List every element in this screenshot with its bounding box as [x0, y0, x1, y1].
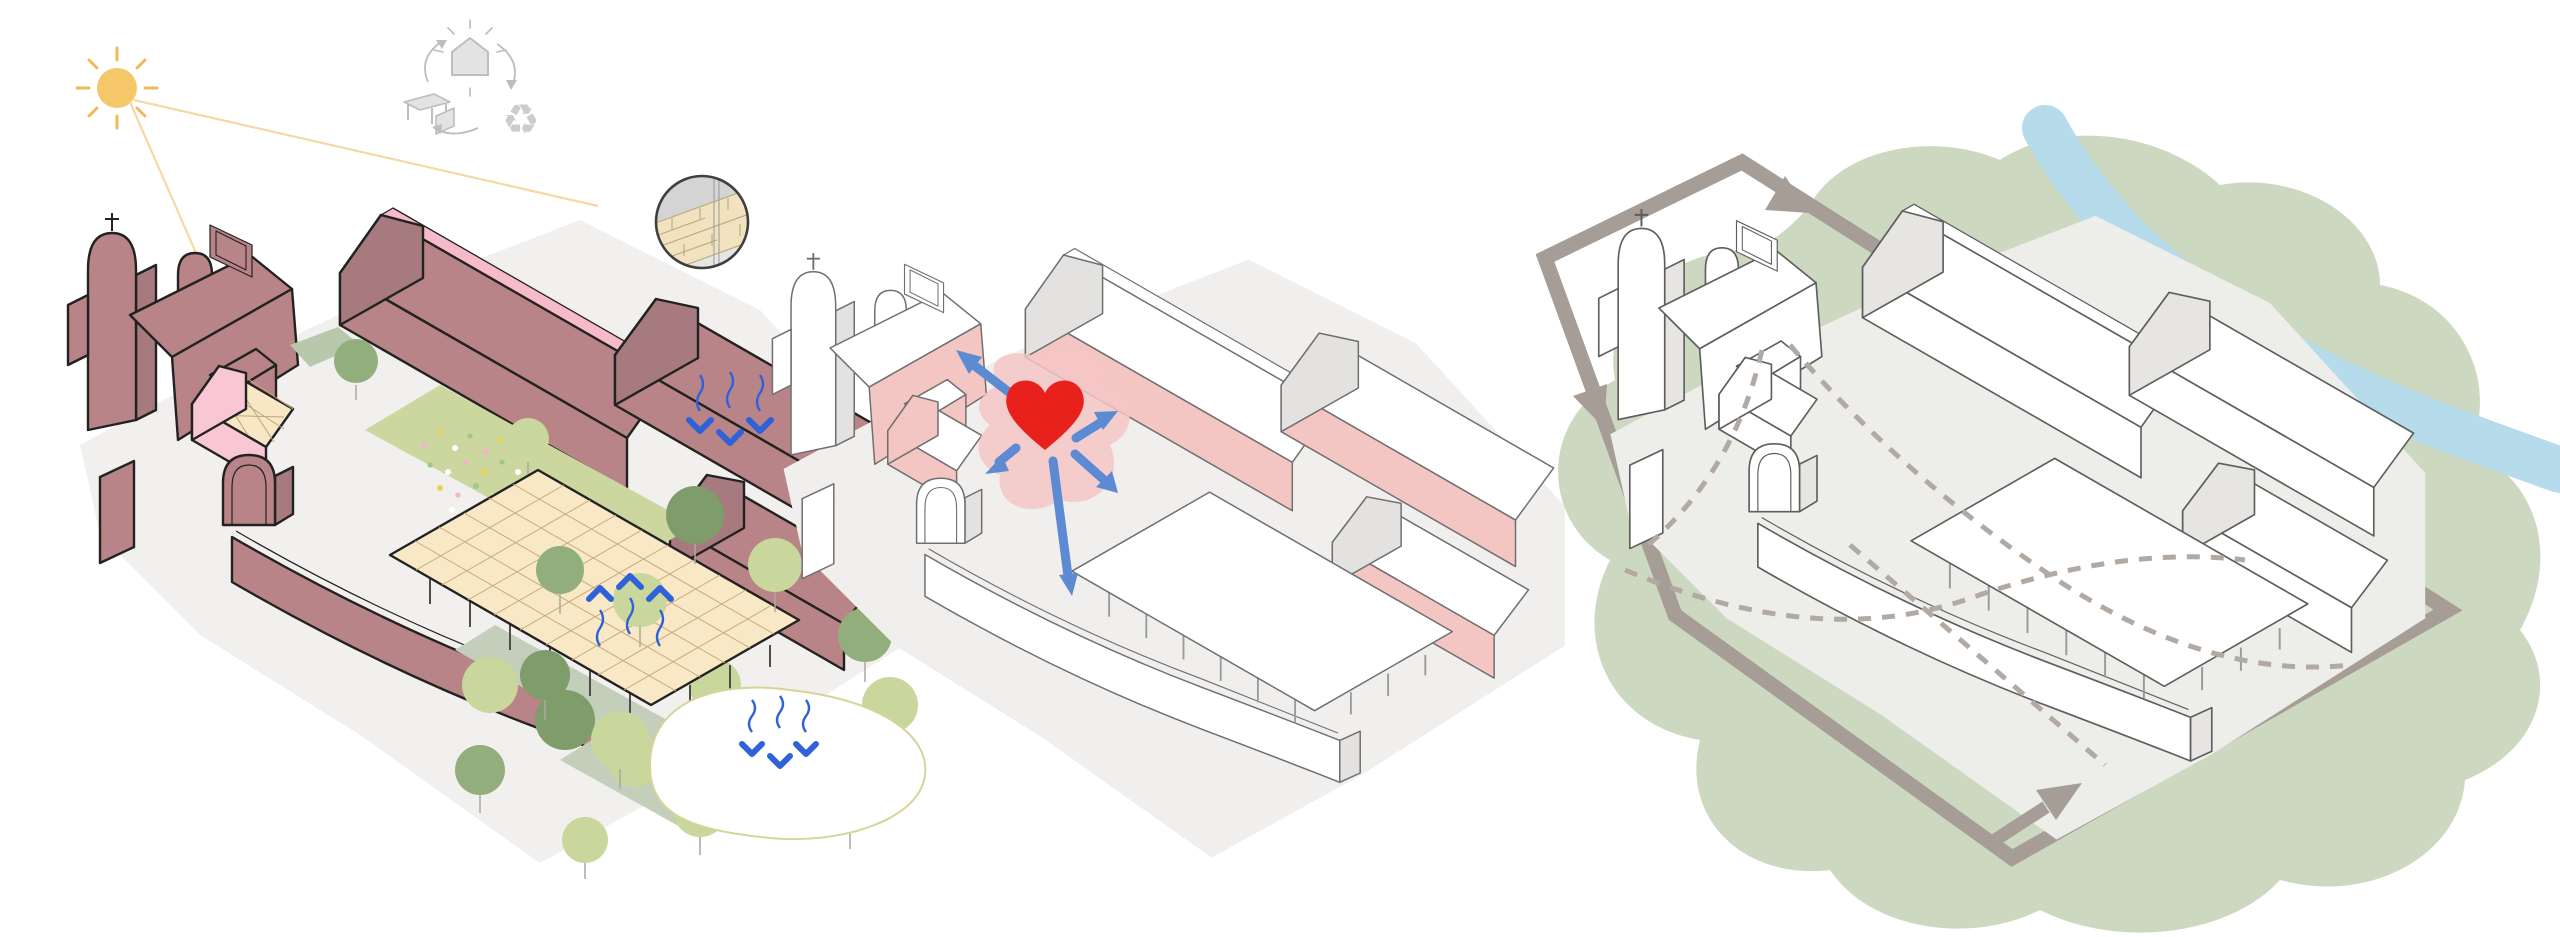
sun-icon — [77, 48, 157, 128]
tree — [536, 546, 584, 594]
panel-landscape-circulation — [1545, 128, 2560, 933]
tree — [562, 817, 608, 863]
diagram-canvas: ♻ — [0, 0, 2560, 937]
house-icon — [434, 20, 506, 96]
tree — [520, 650, 570, 700]
tree — [591, 711, 649, 769]
recycle-icon: ♻ — [502, 95, 540, 144]
tree — [455, 745, 505, 795]
tree — [462, 657, 518, 713]
tree — [507, 418, 549, 460]
tree — [748, 538, 802, 592]
concept-diagram-triptych: ♻ — [0, 0, 2560, 937]
tree — [666, 486, 724, 544]
tree — [334, 339, 378, 383]
furniture-icon — [404, 94, 454, 134]
reuse-cycle-icon: ♻ — [404, 20, 540, 144]
